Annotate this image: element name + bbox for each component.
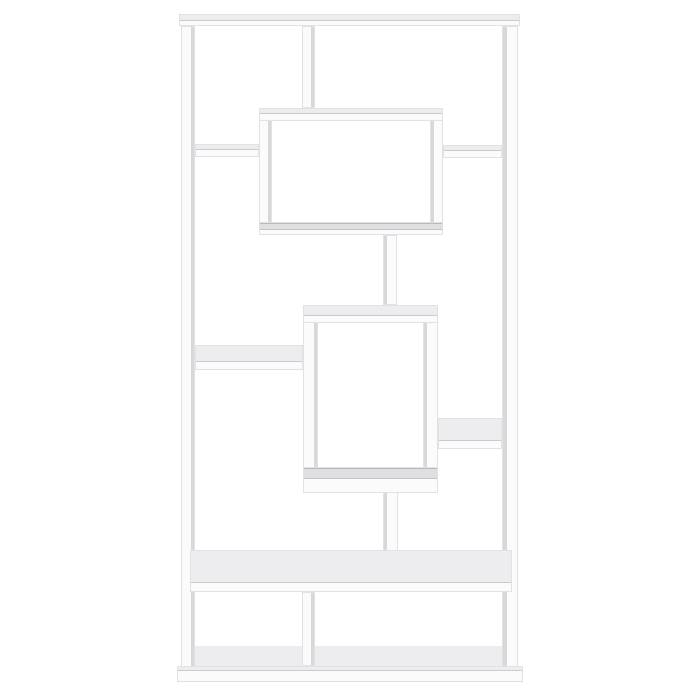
bottom-divider-right-surface xyxy=(311,593,314,665)
upper-box-bottom-top-surface xyxy=(260,223,442,230)
connector-stem-lower-left-surface xyxy=(384,493,387,550)
bottom-divider xyxy=(302,592,315,666)
top-divider-right-surface xyxy=(311,27,314,107)
product-photo xyxy=(0,0,700,700)
bookcase xyxy=(0,0,700,700)
upper-box-top xyxy=(259,108,443,121)
connector-stem-upper-left-surface xyxy=(384,236,387,304)
lower-box-left-wall xyxy=(303,305,318,492)
left-shelf-upper xyxy=(195,144,259,157)
top-divider xyxy=(302,26,315,108)
upper-box-top-top-surface xyxy=(260,109,442,114)
connector-stem-upper xyxy=(383,235,397,305)
connector-stem-lower xyxy=(383,492,398,551)
right-shelf-upper-top-surface xyxy=(444,146,501,151)
right-shelf-middle-top-surface xyxy=(439,419,501,441)
upper-box-bottom xyxy=(259,222,443,235)
long-shelf xyxy=(190,550,512,592)
top-board xyxy=(179,14,520,26)
plinth-base-top-surface xyxy=(178,667,522,671)
plinth-base xyxy=(177,666,523,682)
lower-box-right-wall-left-surface xyxy=(424,306,427,491)
lower-box-bottom-top-surface xyxy=(304,468,437,479)
long-shelf-top-surface xyxy=(191,551,511,583)
left-shelf-middle xyxy=(195,345,303,370)
left-shelf-middle-top-surface xyxy=(196,346,302,362)
right-shelf-upper xyxy=(443,145,502,158)
upper-box-left-wall xyxy=(259,108,272,235)
lower-box-left-wall-right-surface xyxy=(314,306,317,491)
lower-box-bottom xyxy=(303,467,438,493)
upper-box-right-wall xyxy=(430,108,443,235)
top-board-top-surface xyxy=(180,15,519,21)
left-shelf-upper-top-surface xyxy=(196,145,258,150)
base-top-surface xyxy=(194,646,502,666)
upper-box-left-wall-right-surface xyxy=(268,109,271,234)
upper-box-right-wall-left-surface xyxy=(431,109,434,234)
lower-box-top-top-surface xyxy=(304,306,437,316)
lower-box-right-wall xyxy=(423,305,438,492)
right-shelf-middle xyxy=(438,418,502,449)
lower-box-top xyxy=(303,305,438,323)
